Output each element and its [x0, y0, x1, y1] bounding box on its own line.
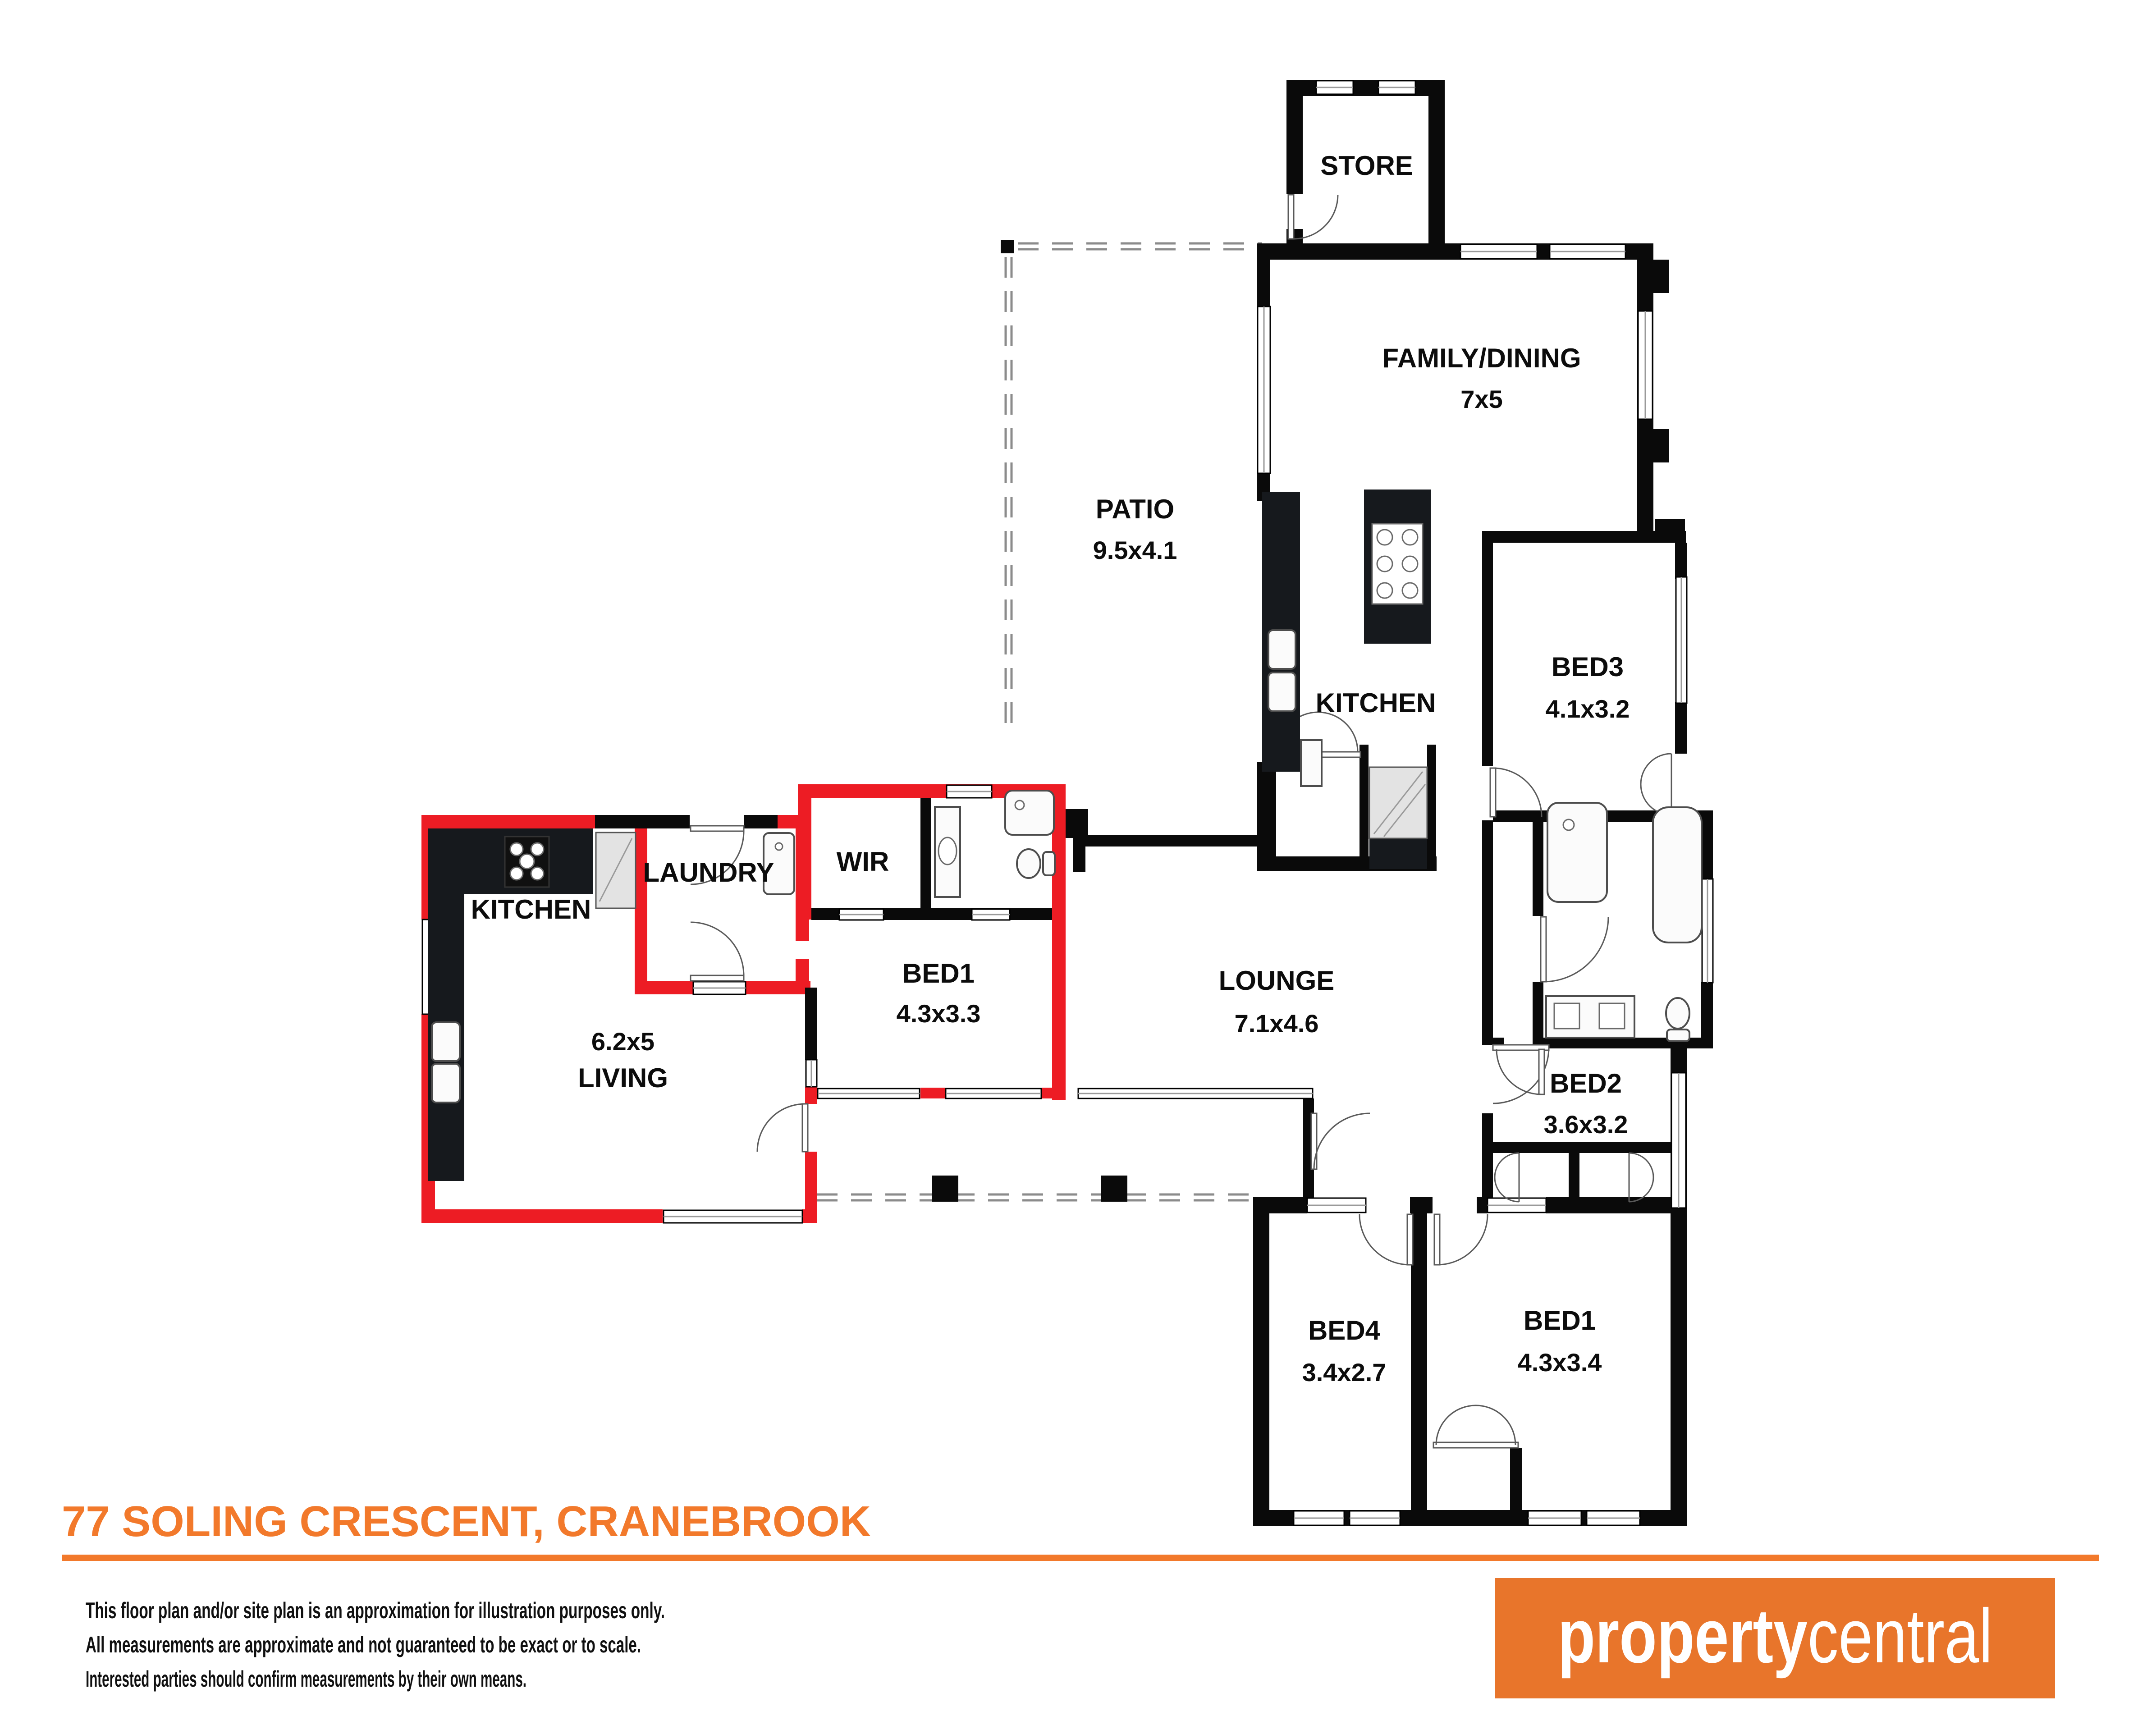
room-dims-bed2: 3.6x3.2	[1544, 1110, 1628, 1139]
toilet	[1666, 998, 1689, 1029]
patio-outline	[1001, 240, 1262, 735]
footer: 77 SOLING CRESCENT, CRANEBROOK This floo…	[62, 1497, 2099, 1698]
basin	[938, 837, 957, 865]
room-label-store: STORE	[1320, 151, 1413, 181]
tap-icon	[775, 843, 783, 850]
room-label-patio: PATIO	[1096, 494, 1174, 524]
room-label-bed3: BED3	[1552, 652, 1624, 682]
toilet	[1017, 849, 1040, 878]
sink	[432, 1022, 460, 1061]
cooktop	[1372, 524, 1423, 604]
room-label-bed1-rear: BED1	[1524, 1305, 1596, 1336]
disclaimer-line: Interested parties should confirm measur…	[86, 1666, 526, 1692]
logo-text: propertycentral	[1558, 1593, 1993, 1679]
toilet-cistern	[1043, 852, 1055, 875]
basin	[1599, 1003, 1625, 1029]
title-rule	[62, 1555, 2099, 1561]
room-label-laundry: LAUNDRY	[643, 857, 774, 888]
room-dims-patio: 9.5x4.1	[1093, 536, 1177, 564]
oven	[1301, 740, 1322, 786]
shower-head-icon	[1563, 819, 1574, 830]
sink	[1268, 673, 1295, 711]
room-labels: STORE FAMILY/DINING 7x5 PATIO 9.5x4.1 KI…	[471, 151, 1630, 1386]
agency-logo: propertycentral	[1495, 1578, 2055, 1698]
verandah-outline	[817, 1176, 1252, 1202]
room-label-kitchen-granny: KITCHEN	[471, 894, 591, 924]
shower	[1005, 791, 1054, 835]
verandah-post	[1101, 1176, 1127, 1202]
room-dims-bed4: 3.4x2.7	[1302, 1358, 1387, 1386]
sink	[432, 1064, 460, 1103]
sink	[1268, 630, 1295, 669]
bathtub	[1653, 807, 1702, 943]
room-dims-living: 6.2x5	[591, 1027, 655, 1056]
shower-head-icon	[1015, 801, 1024, 810]
room-label-bed2: BED2	[1550, 1068, 1622, 1098]
cooktop	[505, 837, 549, 887]
room-label-bed1-left: BED1	[902, 958, 975, 988]
room-label-wir: WIR	[837, 846, 889, 877]
room-dims-lounge: 7.1x4.6	[1235, 1009, 1319, 1038]
basin	[1554, 1003, 1579, 1029]
verandah-post	[932, 1176, 958, 1202]
disclaimer-line: This floor plan and/or site plan is an a…	[86, 1598, 665, 1623]
room-dims-bed3: 4.1x3.2	[1546, 695, 1630, 723]
shower	[1547, 803, 1607, 902]
room-label-lounge: LOUNGE	[1219, 965, 1335, 996]
room-label-kitchen-main: KITCHEN	[1316, 688, 1436, 718]
room-label-family-dining: FAMILY/DINING	[1382, 343, 1581, 373]
room-dims-bed1-left: 4.3x3.3	[897, 999, 981, 1028]
room-label-living: LIVING	[578, 1063, 668, 1093]
room-dims-bed1-rear: 4.3x3.4	[1518, 1348, 1602, 1377]
floorplan-svg: STORE FAMILY/DINING 7x5 PATIO 9.5x4.1 KI…	[0, 0, 2156, 1725]
page-title: 77 SOLING CRESCENT, CRANEBROOK	[62, 1497, 871, 1546]
room-dims-family-dining: 7x5	[1460, 385, 1502, 413]
patio-post	[1001, 240, 1014, 253]
fridge	[1369, 767, 1427, 869]
fridge	[596, 833, 636, 908]
disclaimer-line: All measurements are approximate and not…	[86, 1632, 641, 1657]
windows	[422, 81, 1713, 1525]
toilet-cistern	[1667, 1030, 1689, 1041]
room-label-bed4: BED4	[1308, 1315, 1381, 1345]
